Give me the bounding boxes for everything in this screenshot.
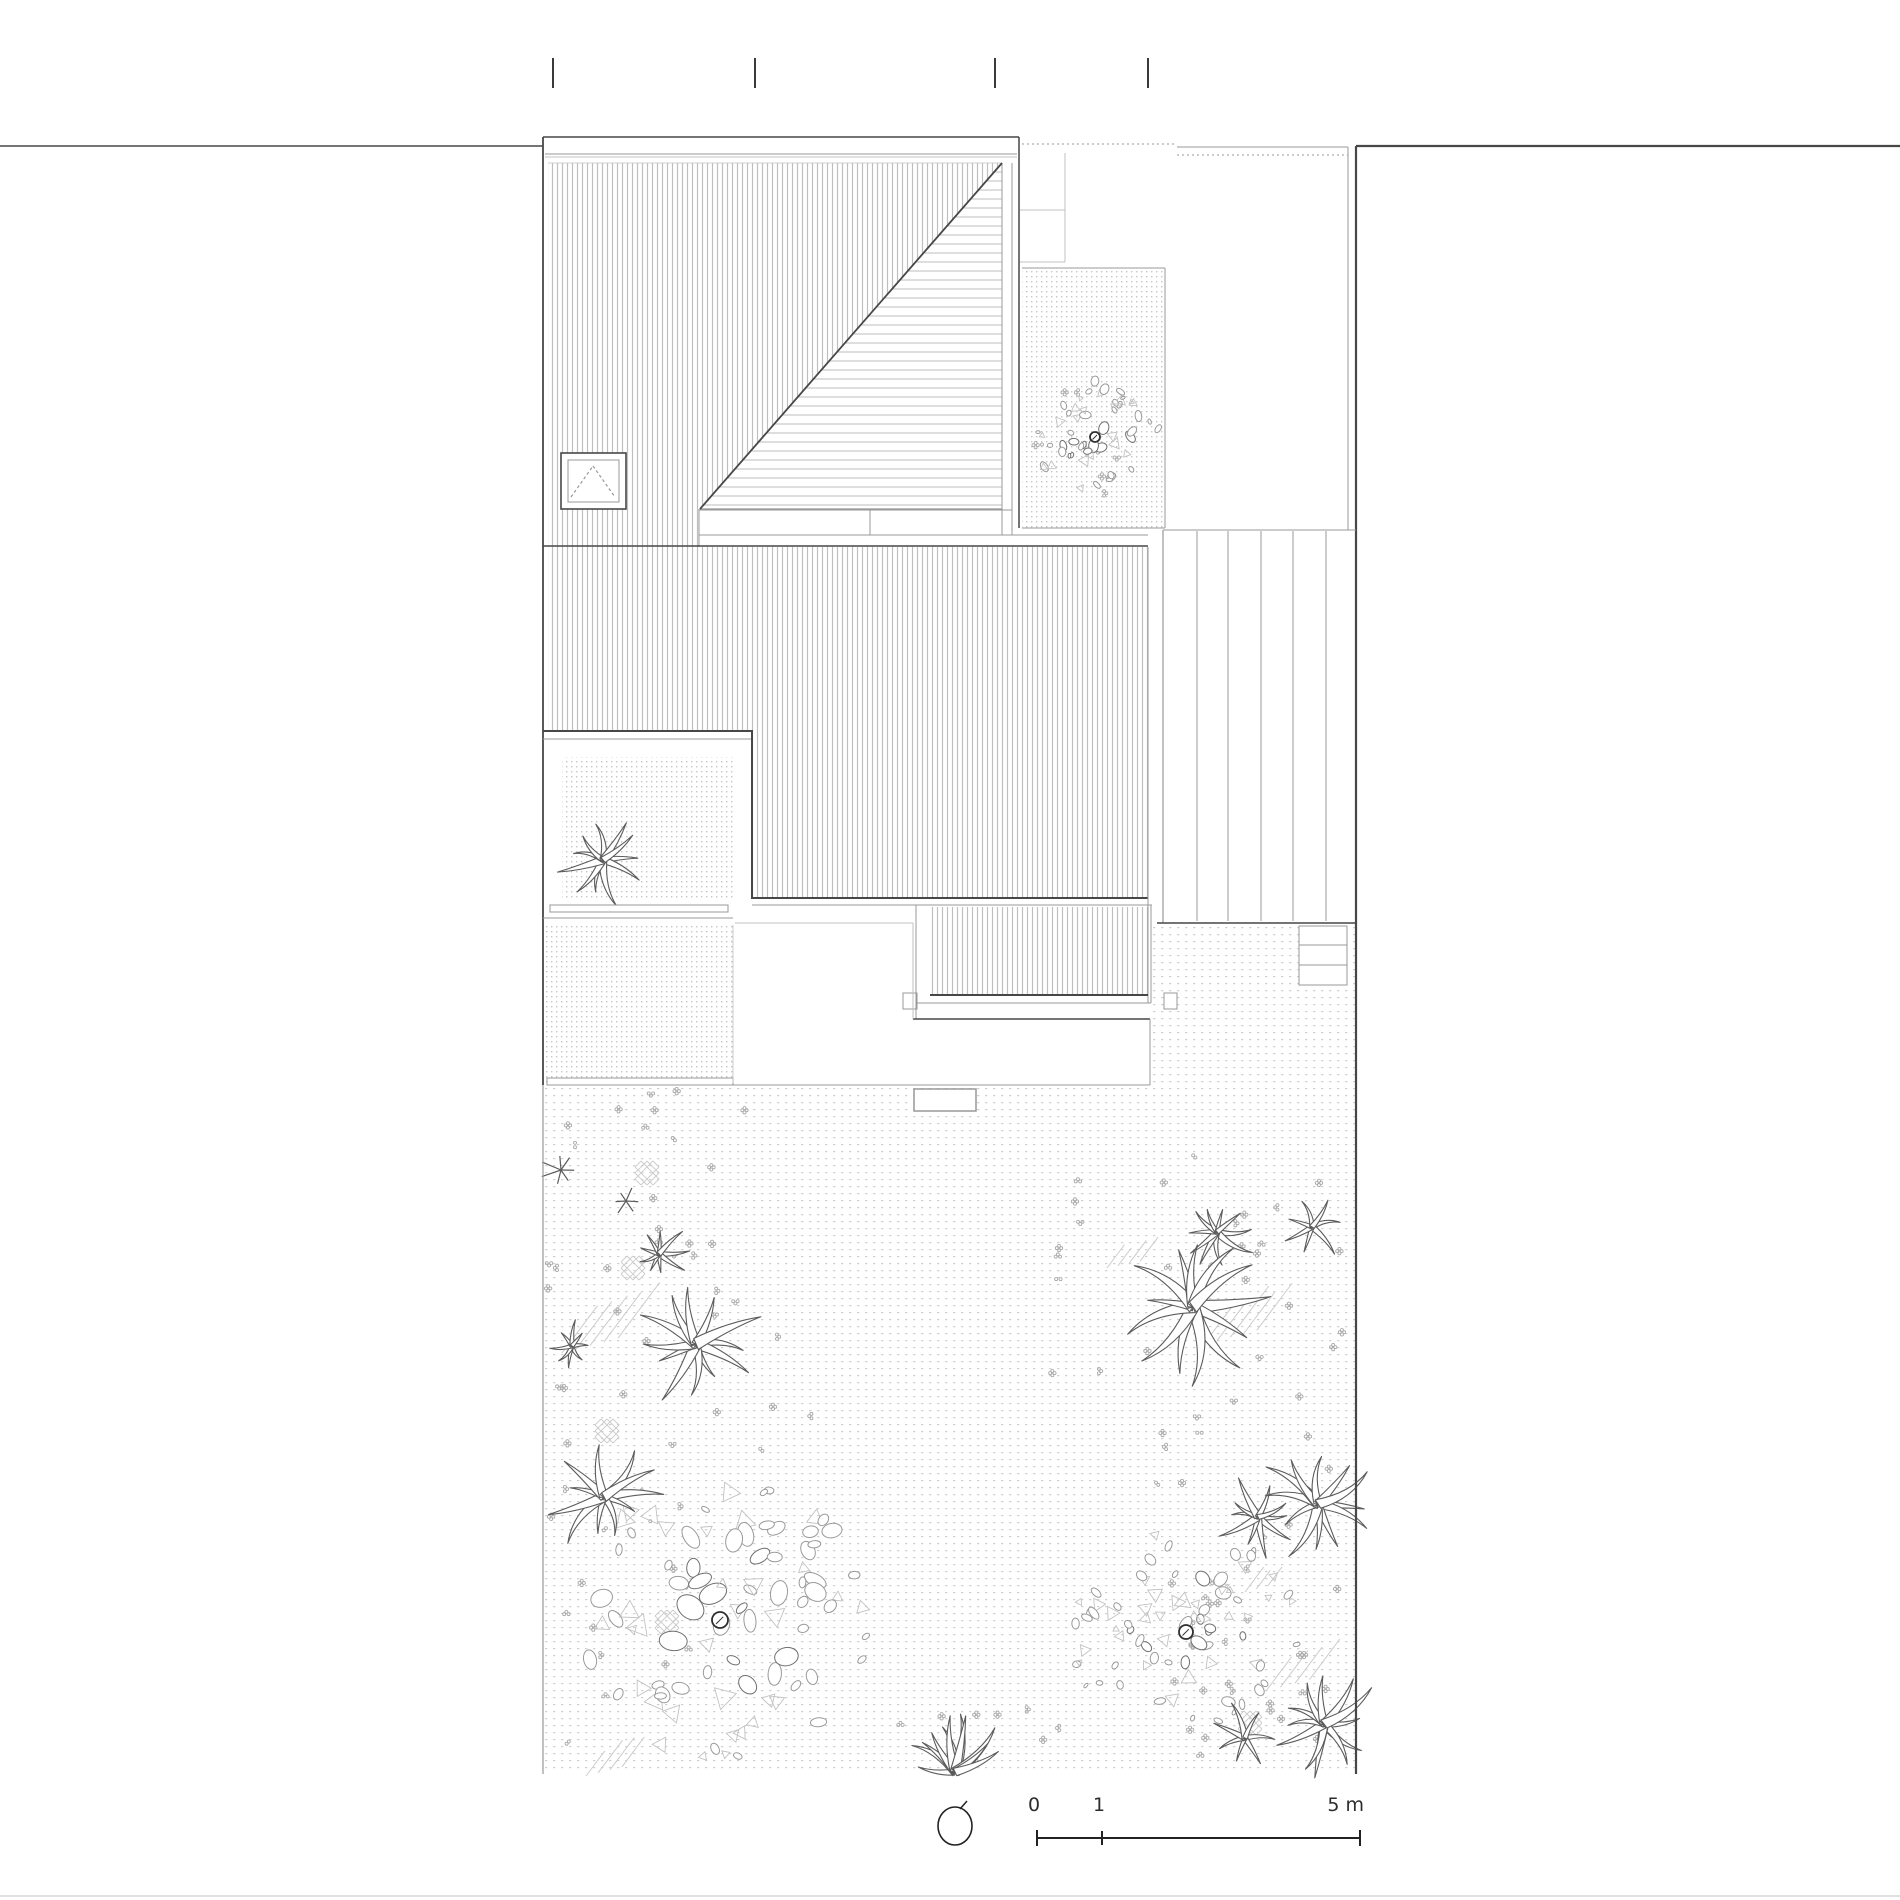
fixture-rect (903, 993, 917, 1009)
roof-seam-hatch (548, 509, 699, 547)
scale-label-5m: 5 m (1284, 1796, 1364, 1815)
scale-bar (1037, 1830, 1360, 1846)
stone (1197, 1614, 1205, 1624)
scale-label-0: 0 (1014, 1796, 1054, 1815)
gravel-area (545, 925, 733, 1083)
plant-leaf (626, 1201, 638, 1202)
fixture-rect (914, 1089, 976, 1111)
stone (1068, 453, 1071, 458)
fixture-rect (550, 905, 728, 912)
section-ticks (553, 58, 1148, 88)
stone (1047, 443, 1053, 447)
stone (1096, 1680, 1103, 1685)
stone (654, 1693, 666, 1700)
stone (848, 1571, 860, 1579)
stone (1072, 1618, 1080, 1629)
stone (1058, 447, 1066, 457)
stone (1069, 438, 1079, 445)
scale-label-1: 1 (1079, 1796, 1119, 1815)
north-circle (938, 1807, 972, 1845)
north-pointer (960, 1801, 967, 1809)
site-plan-drawing (0, 0, 1900, 1900)
stone (615, 1544, 622, 1556)
drawing-page: 0 1 5 m (0, 0, 1900, 1900)
north-arrow-icon (938, 1801, 972, 1845)
roof-seam-hatch (548, 547, 1148, 731)
stone (1239, 1699, 1246, 1710)
stone (703, 1665, 712, 1679)
fixture-rect (1164, 993, 1177, 1009)
garden-ground (545, 1087, 1150, 1772)
roof-seam-hatch (752, 731, 1148, 898)
plant-leaf (616, 1201, 626, 1202)
stone (1036, 431, 1041, 434)
fixture-rect (547, 1078, 733, 1085)
roof-seam-hatch (930, 907, 1148, 995)
stone (767, 1552, 782, 1562)
stone (1181, 1656, 1190, 1669)
gravel-area (1022, 268, 1165, 528)
fixture-rect (699, 510, 1012, 535)
stone (1239, 1631, 1246, 1640)
fixture-rect (1299, 926, 1347, 985)
gravel-area (562, 757, 735, 898)
stone (799, 1577, 807, 1588)
